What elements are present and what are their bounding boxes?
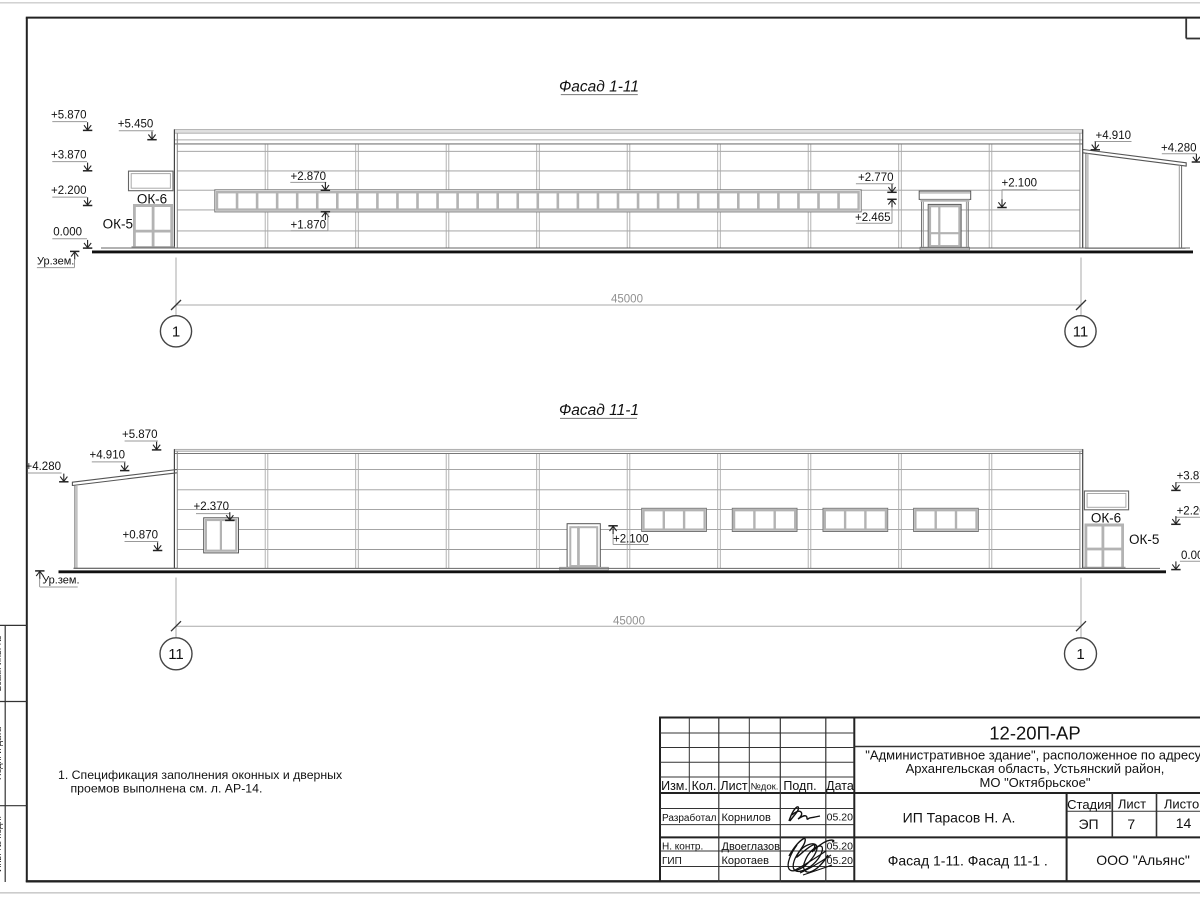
svg-text:+3.870: +3.870: [1177, 470, 1200, 482]
svg-text:Ур.зем.: Ур.зем.: [37, 255, 74, 267]
svg-text:+2.870: +2.870: [291, 171, 327, 183]
svg-text:Разработал: Разработал: [662, 812, 717, 824]
svg-text:ОК-6: ОК-6: [1091, 511, 1121, 526]
svg-text:+2.465: +2.465: [855, 212, 891, 224]
svg-text:Коротаев: Коротаев: [722, 855, 770, 867]
svg-text:+5.870: +5.870: [51, 109, 87, 121]
svg-text:05.20: 05.20: [827, 811, 853, 823]
svg-text:Двоеглазов: Двоеглазов: [722, 841, 781, 853]
svg-text:ИП Тарасов Н. А.: ИП Тарасов Н. А.: [903, 809, 1016, 825]
svg-text:МО "Октябрьское": МО "Октябрьское": [980, 775, 1091, 790]
svg-text:Корнилов: Корнилов: [722, 812, 772, 824]
svg-text:Листов: Листов: [1164, 797, 1200, 812]
svg-text:1: 1: [1076, 646, 1084, 663]
svg-text:11: 11: [1073, 324, 1089, 341]
svg-text:Лист: Лист: [1118, 797, 1146, 812]
svg-text:Кол.: Кол.: [692, 779, 717, 793]
svg-text:ООО "Альянс": ООО "Альянс": [1096, 852, 1190, 868]
svg-text:1. Спецификация заполнения око: 1. Спецификация заполнения оконных и две…: [58, 768, 343, 782]
svg-text:1: 1: [172, 324, 180, 341]
svg-text:+2.100: +2.100: [613, 533, 649, 545]
svg-text:Изм.: Изм.: [661, 779, 688, 793]
svg-text:Лист: Лист: [720, 779, 747, 793]
svg-text:+2.370: +2.370: [194, 501, 230, 513]
svg-text:Подп. и дата: Подп. и дата: [0, 727, 3, 780]
svg-text:+2.100: +2.100: [1002, 177, 1038, 189]
svg-text:14: 14: [1176, 815, 1192, 831]
svg-text:0.000: 0.000: [53, 227, 82, 239]
svg-text:+5.870: +5.870: [122, 429, 158, 441]
svg-text:+0.870: +0.870: [123, 529, 159, 541]
svg-text:ОК-5: ОК-5: [1129, 532, 1159, 547]
svg-text:12-20П-АР: 12-20П-АР: [989, 723, 1080, 744]
svg-text:Фасад 11-1: Фасад 11-1: [559, 402, 639, 419]
svg-text:+1.870: +1.870: [291, 219, 327, 231]
svg-text:11: 11: [168, 646, 184, 663]
svg-text:проемов выполнена см. л. АР-14: проемов выполнена см. л. АР-14.: [71, 782, 263, 796]
svg-text:"Административное здание", рас: "Административное здание", расположенное…: [865, 747, 1200, 762]
svg-text:Дата: Дата: [826, 779, 854, 793]
svg-text:05.20: 05.20: [827, 840, 853, 852]
svg-text:0.000: 0.000: [1181, 550, 1200, 562]
svg-text:№док.: №док.: [751, 782, 779, 793]
svg-text:+2.200: +2.200: [1177, 505, 1200, 517]
svg-text:+4.280: +4.280: [1161, 142, 1197, 154]
svg-text:Ур.зем.: Ур.зем.: [42, 575, 79, 587]
svg-text:+4.910: +4.910: [90, 450, 126, 462]
svg-text:+4.280: +4.280: [26, 461, 62, 473]
svg-text:ГИП: ГИП: [662, 856, 682, 867]
svg-text:+3.870: +3.870: [51, 149, 87, 161]
svg-text:ОК-5: ОК-5: [103, 217, 133, 232]
svg-text:+5.450: +5.450: [118, 119, 154, 131]
svg-text:+4.910: +4.910: [1096, 130, 1132, 142]
svg-text:45000: 45000: [611, 293, 643, 305]
svg-text:Н. контр.: Н. контр.: [662, 841, 703, 852]
svg-text:Фасад 1-11: Фасад 1-11: [559, 79, 639, 96]
svg-text:Подп.: Подп.: [783, 779, 816, 793]
svg-text:7: 7: [1127, 816, 1135, 832]
svg-text:Фасад 1-11. Фасад 11-1 .: Фасад 1-11. Фасад 11-1 .: [888, 852, 1048, 868]
svg-text:+2.770: +2.770: [858, 172, 894, 184]
svg-text:+2.200: +2.200: [51, 185, 87, 197]
svg-text:ЭП: ЭП: [1078, 816, 1098, 832]
svg-text:45000: 45000: [613, 615, 645, 627]
svg-text:Инв. № подл.: Инв. № подл.: [0, 816, 3, 872]
svg-text:Стадия: Стадия: [1067, 797, 1111, 812]
svg-text:Взам. инв. №: Взам. инв. №: [0, 635, 3, 691]
